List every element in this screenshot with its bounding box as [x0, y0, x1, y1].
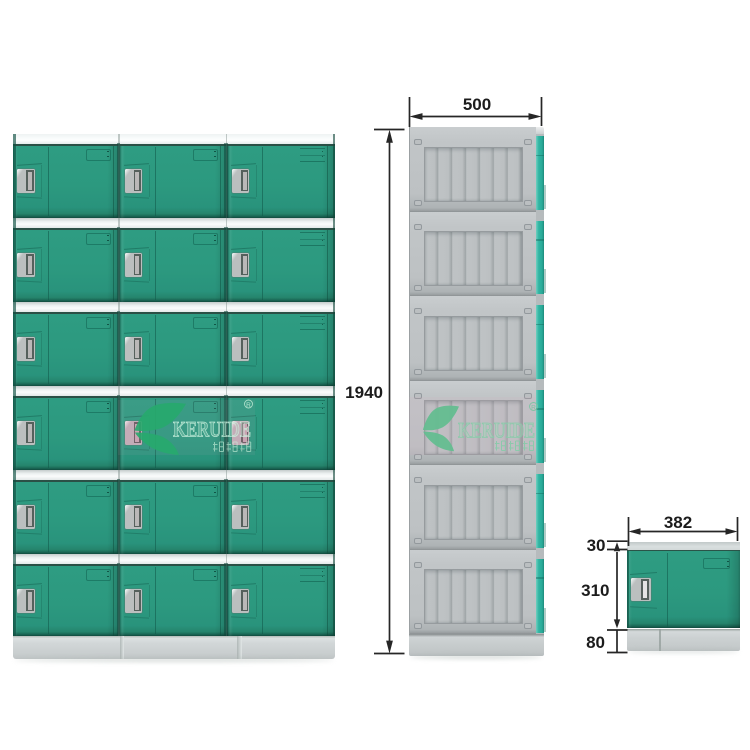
svg-text:R: R	[246, 402, 251, 409]
svg-text:382: 382	[664, 513, 692, 532]
svg-text:310: 310	[581, 581, 609, 600]
svg-text:80: 80	[586, 633, 605, 652]
svg-text:R: R	[531, 404, 536, 411]
svg-text:500: 500	[463, 95, 491, 114]
svg-text:KERUIDE: KERUIDE	[458, 418, 535, 443]
svg-text:1940: 1940	[345, 383, 383, 402]
svg-text:30: 30	[587, 536, 606, 555]
svg-text:KERUIDE: KERUIDE	[173, 417, 251, 442]
